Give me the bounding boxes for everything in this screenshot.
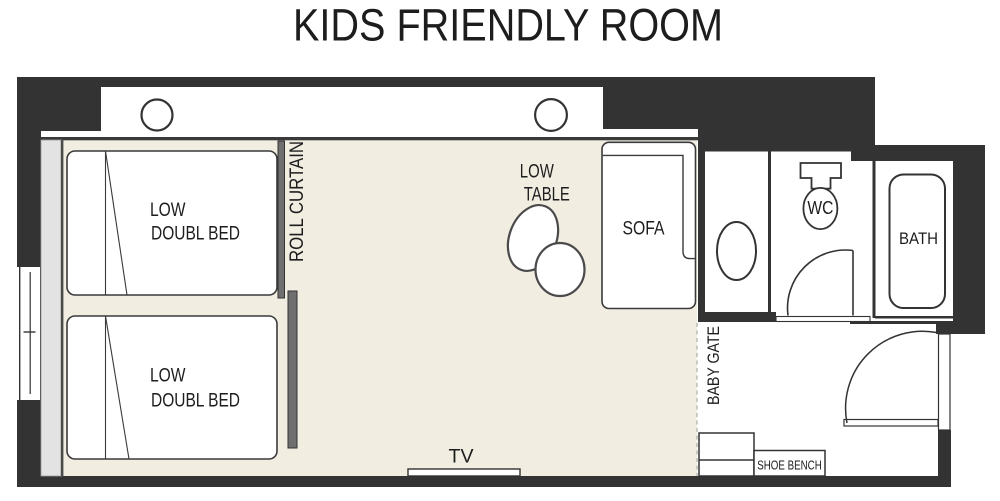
svg-text:LOW: LOW xyxy=(520,162,554,183)
svg-text:WC: WC xyxy=(807,197,833,218)
svg-text:ROLL CURTAIN: ROLL CURTAIN xyxy=(287,141,308,262)
svg-text:LOW: LOW xyxy=(150,200,186,221)
svg-text:KIDS FRIENDLY ROOM: KIDS FRIENDLY ROOM xyxy=(293,0,723,51)
svg-text:LOW: LOW xyxy=(150,366,186,387)
svg-text:SHOE BENCH: SHOE BENCH xyxy=(757,459,822,473)
svg-text:DOUBL BED: DOUBL BED xyxy=(151,224,240,245)
svg-text:TV: TV xyxy=(449,447,474,468)
svg-text:TABLE: TABLE xyxy=(524,185,570,206)
svg-text:BABY GATE: BABY GATE xyxy=(704,326,723,405)
svg-text:DOUBL BED: DOUBL BED xyxy=(151,391,240,412)
svg-text:BATH: BATH xyxy=(899,229,938,248)
svg-text:SOFA: SOFA xyxy=(623,219,665,240)
